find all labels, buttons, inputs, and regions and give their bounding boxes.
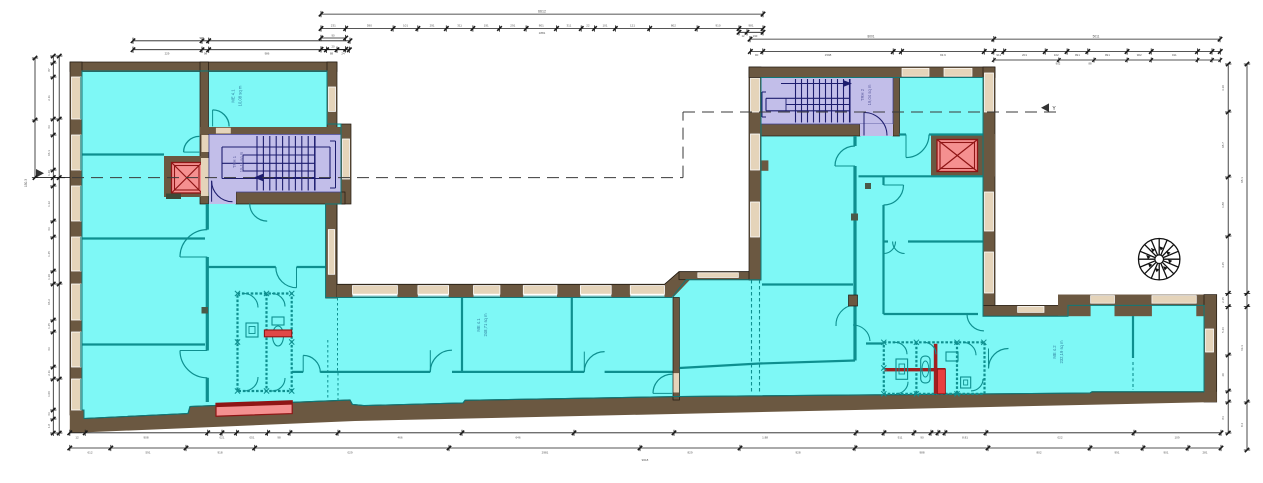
svg-text:98: 98 [277, 435, 281, 439]
svg-text:902: 902 [1137, 53, 1142, 57]
svg-text:1.45: 1.45 [47, 323, 51, 329]
svg-text:2.11: 2.11 [47, 95, 51, 101]
svg-text:991: 991 [1105, 53, 1110, 57]
svg-text:590: 590 [367, 23, 372, 27]
svg-text:011: 011 [1172, 53, 1177, 57]
svg-text:802: 802 [671, 23, 676, 27]
svg-text:87: 87 [47, 68, 51, 72]
svg-text:90: 90 [920, 435, 924, 439]
svg-text:9618: 9618 [642, 458, 649, 462]
svg-text:ME 4.2: ME 4.2 [1052, 345, 1057, 359]
svg-text:19,04 sq m: 19,04 sq m [867, 84, 872, 105]
svg-text:101: 101 [403, 23, 408, 27]
svg-text:8.81: 8.81 [962, 435, 968, 439]
svg-text:24: 24 [341, 52, 345, 56]
svg-text:1.12: 1.12 [47, 201, 51, 207]
svg-text:90: 90 [755, 53, 759, 57]
svg-text:150.3: 150.3 [24, 179, 28, 187]
svg-text:12: 12 [75, 435, 79, 439]
svg-text:021: 021 [219, 435, 224, 439]
svg-text:4.45: 4.45 [1221, 262, 1225, 268]
svg-text:911: 911 [996, 53, 1001, 57]
svg-text:910: 910 [715, 23, 720, 27]
svg-text:63: 63 [47, 125, 51, 129]
svg-text:901: 901 [1163, 451, 1168, 455]
svg-text:ME 4.1: ME 4.1 [231, 89, 236, 103]
svg-text:232,19 sq m: 232,19 sq m [1059, 340, 1064, 364]
svg-text:63: 63 [47, 412, 51, 416]
svg-text:2.15: 2.15 [1221, 297, 1225, 303]
svg-text:40: 40 [1221, 373, 1225, 377]
svg-text:986: 986 [265, 52, 270, 56]
svg-text:988: 988 [919, 451, 924, 455]
svg-text:971: 971 [199, 36, 204, 40]
svg-text:281: 281 [1202, 451, 1207, 455]
svg-text:801: 801 [539, 23, 544, 27]
svg-text:6612: 6612 [538, 9, 546, 13]
svg-text:3.10: 3.10 [1221, 85, 1225, 91]
svg-text:190: 190 [753, 34, 758, 38]
svg-text:63: 63 [47, 347, 51, 351]
svg-text:5.46: 5.46 [1221, 327, 1225, 333]
svg-text:20: 20 [331, 45, 335, 49]
svg-text:248,71 sq m: 248,71 sq m [483, 313, 488, 337]
svg-text:029: 029 [347, 451, 352, 455]
svg-text:646: 646 [515, 435, 520, 439]
svg-text:2.11: 2.11 [47, 370, 51, 376]
svg-text:191: 191 [484, 23, 489, 27]
svg-text:981: 981 [748, 23, 753, 27]
svg-text:201: 201 [1022, 53, 1027, 57]
svg-text:928: 928 [795, 451, 800, 455]
svg-text:98.7: 98.7 [1221, 142, 1225, 148]
svg-text:229: 229 [165, 52, 170, 56]
svg-text:8001: 8001 [867, 34, 874, 38]
svg-text:311: 311 [567, 23, 572, 27]
svg-text:291: 291 [430, 23, 435, 27]
svg-text:10,08 sq m: 10,08 sq m [238, 85, 243, 106]
svg-text:96.1: 96.1 [47, 150, 51, 156]
svg-text:1598: 1598 [825, 53, 832, 57]
svg-text:8.4: 8.4 [1240, 423, 1244, 427]
svg-text:101: 101 [602, 23, 607, 27]
svg-text:98: 98 [204, 52, 208, 56]
svg-text:ME 4.1: ME 4.1 [476, 318, 481, 332]
svg-text:63: 63 [47, 227, 51, 231]
svg-text:291: 291 [510, 23, 515, 27]
svg-text:591: 591 [145, 451, 150, 455]
svg-text:1.8: 1.8 [47, 424, 51, 428]
svg-text:98.1: 98.1 [1240, 177, 1244, 183]
svg-text:311: 311 [457, 23, 462, 27]
svg-text:1.40: 1.40 [47, 170, 51, 176]
svg-text:84: 84 [1221, 416, 1225, 420]
svg-text:96.2: 96.2 [47, 299, 51, 305]
svg-text:2981: 2981 [542, 451, 549, 455]
svg-text:1.88: 1.88 [762, 435, 768, 439]
svg-text:TRH 2: TRH 2 [860, 88, 865, 101]
svg-text:12: 12 [741, 34, 745, 38]
svg-text:1.45: 1.45 [47, 251, 51, 257]
svg-text:991: 991 [1114, 451, 1119, 455]
svg-text:88: 88 [330, 52, 334, 56]
svg-text:90: 90 [331, 33, 335, 37]
svg-text:121: 121 [630, 23, 635, 27]
svg-text:TRH 1: TRH 1 [232, 155, 237, 168]
svg-text:93.9: 93.9 [940, 53, 946, 57]
svg-text:1.88: 1.88 [1221, 202, 1225, 208]
svg-text:22: 22 [586, 23, 590, 27]
svg-text:5011: 5011 [1093, 34, 1100, 38]
svg-text:908: 908 [143, 435, 148, 439]
svg-text:466: 466 [397, 435, 402, 439]
svg-text:022: 022 [1057, 435, 1062, 439]
svg-text:911: 911 [898, 435, 903, 439]
svg-text:802: 802 [1036, 451, 1041, 455]
svg-text:231: 231 [331, 23, 336, 27]
svg-text:1.06: 1.06 [47, 391, 51, 397]
svg-text:1881: 1881 [539, 31, 546, 35]
svg-text:902: 902 [1056, 62, 1061, 66]
svg-text:612: 612 [87, 451, 92, 455]
svg-text:63.3: 63.3 [1240, 345, 1244, 351]
svg-text:051: 051 [249, 435, 254, 439]
svg-text:991: 991 [1075, 53, 1080, 57]
svg-text:1.10: 1.10 [47, 274, 51, 280]
svg-text:88: 88 [1088, 62, 1092, 66]
svg-text:15,11 sq m: 15,11 sq m [239, 151, 244, 172]
svg-text:102: 102 [1054, 53, 1059, 57]
svg-text:109: 109 [1174, 435, 1179, 439]
svg-text:829: 829 [687, 451, 692, 455]
svg-text:918: 918 [217, 451, 222, 455]
